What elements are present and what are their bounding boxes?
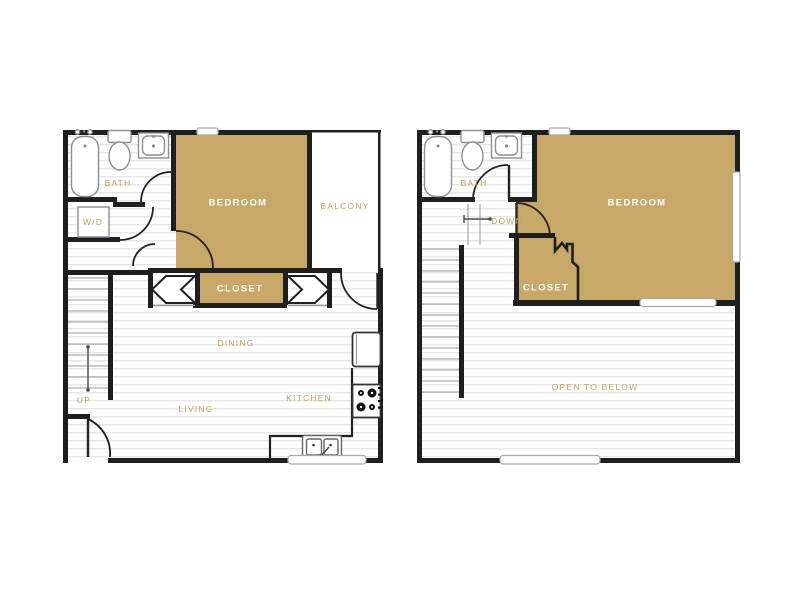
label-closet-floor2: CLOSET — [523, 283, 569, 294]
floorplan-canvas: BATH W/D BEDROOM BALCONY CLOSET DINING K… — [0, 0, 800, 600]
label-balcony: BALCONY — [320, 201, 369, 211]
label-kitchen: KITCHEN — [286, 393, 332, 403]
floor2-top-window — [549, 128, 570, 135]
toilet2-icon — [461, 131, 484, 171]
floorplan-drawing — [0, 0, 800, 600]
label-bedroom-floor2: BEDROOM — [608, 198, 667, 209]
label-dining: DINING — [218, 338, 255, 348]
bedroom2-right-window — [733, 172, 741, 262]
label-closet-floor1: CLOSET — [217, 284, 263, 295]
bathtub1-icon — [72, 130, 99, 197]
label-up: UP — [77, 395, 91, 405]
toilet1-icon — [108, 131, 131, 171]
label-bedroom-floor1: BEDROOM — [209, 198, 268, 209]
label-open-to-below: OPEN TO BELOW — [552, 382, 639, 392]
bathtub2-icon — [425, 130, 452, 197]
bath-sink1-icon — [139, 133, 169, 158]
bath-sink2-icon — [492, 133, 522, 158]
stove-icon — [353, 385, 382, 418]
floor1-kitchen-window — [288, 456, 366, 465]
bedroom2-interior-window — [640, 299, 716, 307]
floor1-top-window — [197, 128, 218, 135]
label-bath-floor1: BATH — [105, 178, 132, 188]
label-living: LIVING — [178, 404, 213, 414]
label-wd: W/D — [83, 217, 103, 227]
fridge-icon — [353, 333, 381, 367]
floor2-bottom-window — [500, 456, 600, 465]
label-down: DOWN — [491, 216, 523, 226]
label-bath-floor2: BATH — [461, 178, 488, 188]
